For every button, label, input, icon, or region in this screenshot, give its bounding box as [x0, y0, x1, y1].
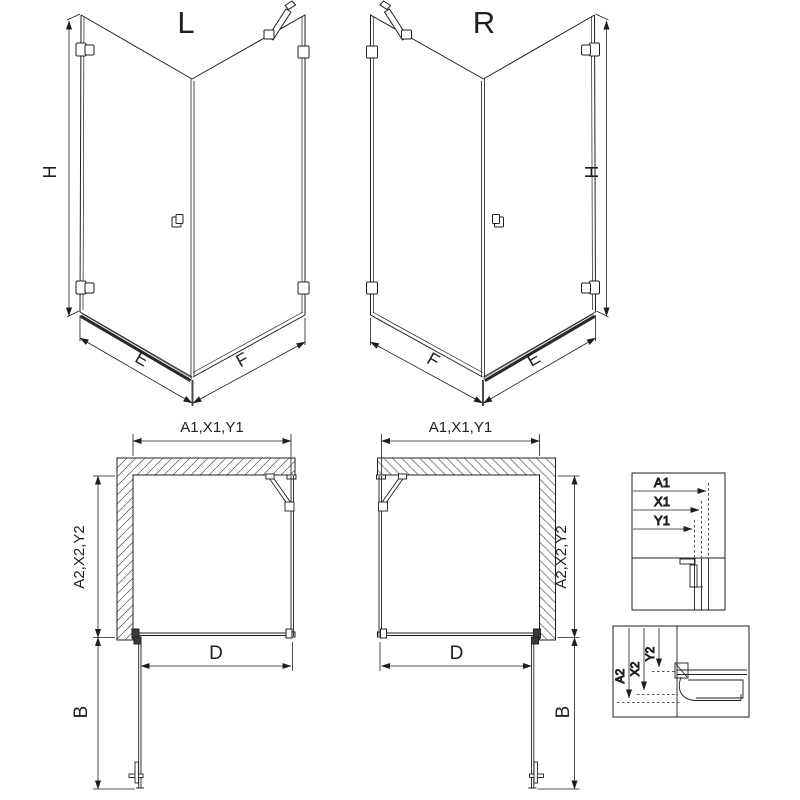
detail-box-bottom: Y2 X2 A2	[613, 626, 749, 717]
fixed-width-label-left: F	[232, 348, 251, 371]
iso-enclosure-geometry-mirrored	[367, 1, 609, 406]
detail-x1-label: X1	[654, 494, 670, 509]
plan-side-dim-right: A2,X2,Y2	[553, 525, 570, 588]
fixed-glass-panel	[192, 15, 305, 377]
technical-drawing-sheet: L R H H E F E F	[0, 0, 800, 800]
plan-side-dim-left: A2,X2,Y2	[71, 525, 88, 588]
door-width-label-left: E	[132, 347, 152, 370]
wall-section	[117, 458, 295, 640]
variant-label-left: L	[177, 5, 194, 40]
door-swing-label-right: B	[553, 706, 574, 719]
door-width-label-right: E	[523, 347, 543, 370]
fixed-panel-plan	[291, 476, 294, 636]
detail-frame	[632, 473, 725, 610]
detail-y2-label: Y2	[643, 646, 657, 661]
height-label-right: H	[582, 166, 602, 179]
detail-a2-label: A2	[613, 668, 627, 683]
fixed-width-label-right: F	[424, 348, 443, 371]
variant-label-right: R	[473, 5, 495, 40]
detail-a1-label: A1	[654, 475, 670, 490]
door-open-plan	[139, 641, 141, 788]
corner-post	[191, 79, 194, 377]
detail-top-arrows	[633, 483, 709, 557]
detail-x2-label: X2	[628, 661, 642, 676]
support-brace-plan	[266, 474, 294, 511]
door-hinges	[76, 43, 94, 294]
detail-box-top: A1 X1 Y1	[632, 473, 725, 610]
wall-bracket-icon	[298, 46, 309, 58]
wall-profile-section	[632, 558, 725, 610]
door-handle	[172, 215, 183, 228]
drawing-canvas: L R H H E F E F	[0, 0, 800, 800]
opening-label-right: D	[450, 643, 464, 664]
opening-label-left: D	[209, 643, 223, 664]
plan-view-geometry-mirrored	[377, 434, 580, 789]
door-closed-plan	[139, 633, 290, 636]
door-swing-label-left: B	[71, 706, 92, 719]
iso-enclosure-geometry	[67, 1, 309, 406]
wall-brackets	[298, 46, 309, 294]
support-bar	[264, 1, 296, 40]
detail-y1-label: Y1	[654, 513, 670, 528]
tray-profile-section	[675, 663, 747, 701]
height-dimension	[67, 14, 80, 317]
height-label-left: H	[40, 166, 60, 179]
plan-view-geometry	[93, 434, 296, 789]
detail-bottom-arrows	[617, 628, 680, 703]
plan-top-dim-left: A1,X1,Y1	[180, 419, 243, 436]
plan-top-dim-right: A1,X1,Y1	[429, 419, 492, 436]
wall-bracket-icon	[298, 282, 309, 294]
